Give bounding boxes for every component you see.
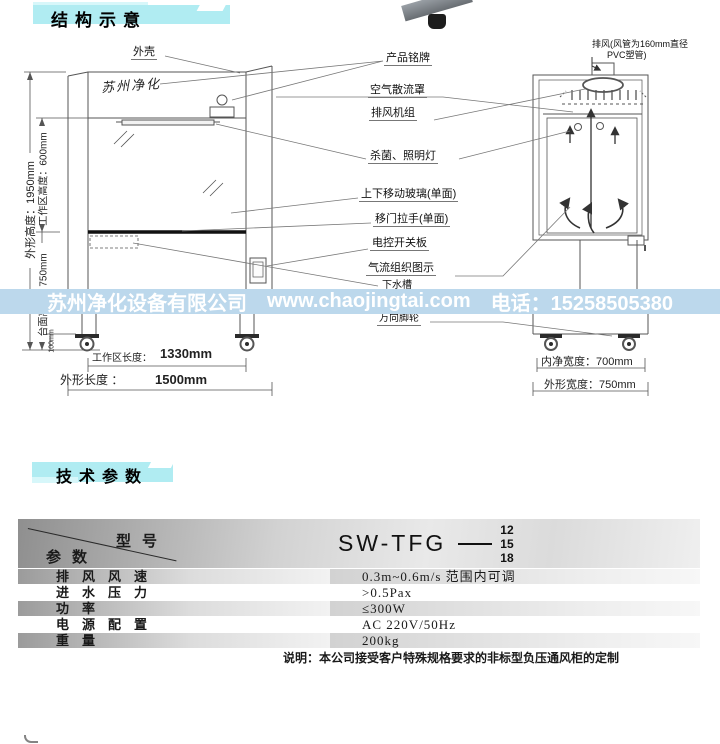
label-exhaust-fan-unit: 排风机组 [369, 107, 417, 121]
row-value: 200kg [330, 633, 700, 648]
row-label: 进水压力 [18, 585, 330, 600]
specs-title-notch [148, 460, 175, 468]
row-label: 电源配置 [18, 617, 330, 632]
airflow-curve [606, 200, 623, 228]
banner-website[interactable]: www.chaojingtai.com [267, 290, 471, 313]
dim-overall-width: 外形宽度：750mm [544, 376, 636, 392]
specs-section-title: 技术参数 [56, 463, 148, 487]
model-name: SW-TFG [338, 530, 446, 557]
spec-table: 型号 参数 SW-TFG 12 15 18 排风风速 0.3m~0.6m/s 范… [18, 519, 700, 668]
label-airflow-diagram: 气流组织图示 [366, 262, 436, 276]
model-column-label: 型号 [116, 530, 168, 551]
photo-caster-wheel [428, 14, 446, 29]
row-label: 重量 [18, 633, 330, 648]
label-exhaust-note-2: PVC塑管) [607, 48, 647, 61]
row-label: 功率 [18, 601, 330, 616]
model-cell: SW-TFG 12 15 18 [330, 519, 700, 568]
diffuser-ticks [572, 90, 636, 100]
exhaust-fan [583, 78, 623, 92]
row-value: 0.3m~0.6m/s 范围内可调 [330, 569, 700, 584]
table-row: 重量 200kg [18, 633, 700, 648]
model-size: 18 [500, 551, 513, 565]
model-size: 12 [500, 523, 513, 537]
airflow-curve [565, 199, 580, 228]
label-moving-glass: 上下移动玻璃(单面) [359, 188, 458, 202]
model-sizes: 12 15 18 [500, 523, 513, 565]
label-nameplate: 产品铭牌 [384, 52, 432, 66]
param-column-label: 参数 [46, 546, 98, 567]
label-door-handle: 移门拉手(单面) [373, 213, 450, 227]
banner-company: 苏州净化设备有限公司 [47, 287, 247, 316]
label-casters: 万向脚轮 [377, 313, 421, 326]
dim-work-length-value: 1330mm [160, 346, 212, 361]
label-outer-shell: 外壳 [131, 46, 157, 60]
dim-work-length-label: 工作区长度： [92, 349, 152, 364]
lamp-bar [122, 120, 214, 125]
spec-header-corner: 型号 参数 [18, 519, 330, 568]
nameplate-mark [217, 95, 227, 105]
sink-outline [90, 236, 138, 248]
table-row: 进水压力 >0.5Pax [18, 585, 700, 600]
model-dash [458, 543, 492, 545]
label-air-diffuser: 空气散流罩 [368, 84, 427, 98]
lamp [575, 124, 582, 131]
spec-table-header: 型号 参数 SW-TFG 12 15 18 [18, 519, 700, 568]
banner-phone: 电话：15258505380 [491, 287, 673, 316]
dimension-lines [22, 72, 648, 396]
table-row: 功率 ≤300W [18, 601, 700, 616]
dim-overall-length-value: 1500mm [155, 372, 207, 387]
dim-overall-length-label: 外形长度 ： [60, 371, 123, 388]
label-uv-lighting: 杀菌、照明灯 [368, 150, 438, 164]
row-label: 排风风速 [18, 569, 330, 584]
dim-inner-width: 内净宽度：700mm [541, 353, 633, 369]
duct-stub [592, 63, 614, 75]
dim-work-area-height: 工作区高度：600mm [35, 132, 50, 225]
label-switch-panel: 电控开关板 [370, 237, 429, 251]
row-value: ≤300W [330, 601, 700, 616]
row-value: >0.5Pax [330, 585, 700, 600]
structure-diagram: 苏州净化 外壳 产品铭牌 空气散流罩 排风机组 杀菌、照明灯 上下移动玻璃(单面… [0, 0, 720, 460]
table-row: 排风风速 0.3m~0.6m/s 范围内可调 [18, 569, 700, 584]
table-row: 电源配置 AC 220V/50Hz [18, 617, 700, 632]
table-note: 说明：本公司接受客户特殊规格要求的非标型负压通风柜的定制 [18, 648, 700, 668]
lamp [597, 123, 604, 130]
row-value: AC 220V/50Hz [330, 617, 700, 632]
page-corner-mark [24, 735, 38, 743]
dim-base-height: 100mm [49, 329, 56, 352]
model-size: 15 [500, 537, 513, 551]
glass-hatch [114, 131, 223, 196]
watermark-banner: 苏州净化设备有限公司 www.chaojingtai.com 电话：152585… [0, 289, 720, 314]
